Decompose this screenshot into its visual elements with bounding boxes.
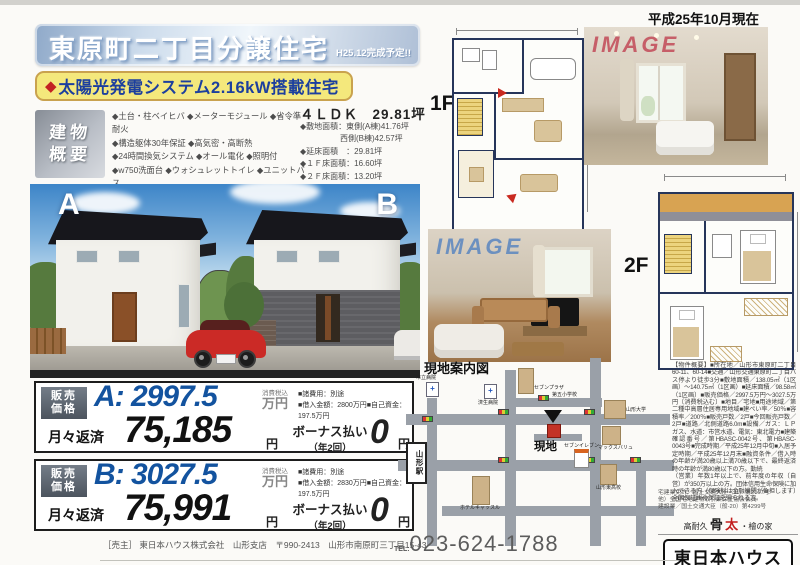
station-box: 山形駅 [406, 442, 427, 484]
license-line: 建設業／国土交通大臣（般-20）第4299号 [658, 504, 798, 511]
flyer-page: 東原町二丁目分譲住宅 H25.12完成予定!! ◆ 太陽光発電システム2.16k… [0, 0, 800, 565]
pillow [750, 234, 766, 244]
door-panel [325, 296, 331, 340]
spec-item: ◆敷地面積：東側(A棟)41.76坪 [300, 121, 409, 133]
bonus-label-a: ボーナス払い （年2回） [288, 421, 372, 454]
closet [744, 298, 788, 316]
overview-label-box: 建物 概要 [35, 110, 105, 178]
legal-text: 【物件概要】■所在地／山形市東原町二丁目60-11、60-14■交通／山形交通東… [672, 362, 796, 503]
tel-label: TEL: [394, 546, 410, 553]
map-label: 済生病院 [478, 399, 498, 406]
company-logo: 東日本ハウス [663, 539, 793, 565]
front-door-b [316, 294, 340, 342]
bathtub [530, 58, 576, 80]
stairs [457, 98, 483, 136]
interior-photo-1: IMAGE [584, 27, 768, 165]
floorplan-1f: 1F [430, 22, 590, 238]
phone-block: TEL:023-624-1788 [394, 531, 559, 557]
license-line: 宅建業免許／国土交通大臣（11）第2167号 [658, 490, 798, 497]
map-label: ホテルキャッスル [460, 504, 500, 511]
bonus-value-a: 0 [370, 413, 389, 452]
car-wheel [194, 350, 212, 368]
spec-item: ◆１Ｆ床面積：16.60坪 [300, 158, 409, 170]
site-marker-icon [547, 424, 561, 438]
kitchen-counter [502, 98, 544, 112]
bed [670, 306, 704, 360]
photo-bottom-strip [30, 370, 420, 378]
site-label: 現地 [534, 438, 557, 454]
red-car-illustration [186, 320, 266, 366]
license-line: 他）全国宅地建物取引業保証協会会員 [658, 497, 798, 504]
cloud [230, 184, 320, 204]
price-tag-a: 販売 価格 [41, 387, 87, 419]
wall [522, 40, 524, 94]
curtain [620, 59, 634, 121]
dimension-line [664, 176, 786, 177]
traffic-light-icon [630, 457, 641, 463]
house-b-illustration [246, 210, 408, 346]
brand-tagline: 高耐久 骨 太 ・檜の家 [658, 514, 798, 535]
window [118, 250, 140, 263]
hubcap [199, 355, 204, 360]
window [276, 250, 298, 263]
window [636, 63, 686, 123]
greenery [641, 96, 655, 116]
building-icon [472, 476, 490, 505]
wall [454, 92, 524, 94]
spec-list: ◆敷地面積：東側(A棟)41.76坪 西側(B棟)42.57坪 ◆延床面積 ：2… [300, 121, 409, 183]
living-sofa [520, 174, 558, 192]
solar-highlight-text: 太陽光発電システム2.16kW搭載住宅 [59, 74, 339, 98]
wall [660, 292, 792, 294]
tax-unit-a: 消費税込 万円 [258, 387, 292, 410]
tagline-hinoki: ・檜の家 [740, 522, 772, 531]
cost-note: ■諸費用：別途 [298, 467, 410, 478]
bonus-term: （年2回） [288, 518, 372, 532]
floorplan-2f-body [658, 192, 794, 370]
building-icon [600, 464, 617, 485]
walls-a [56, 240, 200, 346]
tax-unit-b: 消費税込 万円 [258, 465, 292, 488]
license-lines: 宅建業免許／国土交通大臣（11）第2167号 他）全国宅地建物取引業保証協会会員… [658, 490, 798, 511]
house-b-letter: B [376, 188, 398, 222]
toilet [482, 50, 497, 70]
chair [548, 306, 560, 328]
image-watermark: IMAGE [436, 234, 523, 260]
tagline-futo: 太 [725, 517, 738, 532]
yen-unit: 円 [266, 513, 278, 530]
blanket [743, 251, 771, 281]
house-a-illustration [48, 210, 208, 346]
spec-item: ◆２Ｆ床面積：13.20坪 [300, 171, 409, 183]
feature-item: ◆構造躯体30年保証 ◆高気密・高断熱 [112, 137, 308, 150]
bonus-title: ボーナス払い [288, 499, 372, 518]
house-a-letter: A [58, 188, 80, 222]
spec-item: 西側(B棟)42.57坪 [300, 133, 409, 145]
feature-item: ◆24時間換気システム ◆オール電化 ◆照明付 [112, 150, 308, 163]
dimension-line [797, 212, 798, 352]
map-label: 山形東高校 [596, 484, 621, 491]
seller-info: ［売主］ 東日本ハウス株式会社 山形支店 〒990-2413 山形市南原町三丁目… [103, 539, 427, 551]
floorplan-2f: 2F [622, 168, 798, 368]
title-banner: 東原町二丁目分譲住宅 H25.12完成予定!! [35, 24, 420, 66]
interior-photo-2: IMAGE [428, 229, 611, 362]
wall [494, 94, 496, 160]
floorplan-1f-body [452, 38, 584, 236]
traffic-light-icon [498, 457, 509, 463]
convenience-store-icon [574, 449, 589, 468]
road [636, 460, 646, 546]
cost-note: ■諸費用：別途 [298, 389, 410, 400]
map-label: セブンイレブン [564, 442, 599, 449]
image-watermark: IMAGE [592, 32, 679, 58]
dining-table [534, 120, 562, 142]
feature-item: ◆土台・柱ベイヒバ ◆メーターモジュール ◆省令準耐火 [112, 110, 308, 137]
price-unit: 万円 [258, 397, 292, 410]
curtain [533, 245, 545, 297]
dining-table [480, 298, 548, 322]
pillow [679, 310, 695, 320]
monthly-label-a: 月々返済 [48, 427, 104, 447]
overview-label-line1: 建物 [48, 122, 92, 144]
diamond-icon: ◆ [45, 77, 57, 95]
window [318, 250, 340, 263]
front-door-a [112, 292, 137, 342]
site-map: 現地案内図 山形駅 現地 セブンプラザ 第五小学校 + 市立病院 + 済生病院 … [398, 354, 674, 546]
completion-badge: H25.12完成予定!! [336, 45, 411, 59]
monthly-value-a: 75,185 [124, 409, 231, 451]
traffic-light-icon [584, 409, 595, 415]
bonus-label-b: ボーナス払い （年2回） [288, 499, 372, 532]
traffic-light-icon [538, 395, 549, 401]
window [76, 250, 98, 263]
blanket [673, 327, 699, 357]
plan-type: ４ＬＤＫ 29.81坪 [300, 103, 426, 123]
map-label: 山形大学 [626, 406, 646, 413]
tagline-hone: 骨 [710, 517, 723, 532]
loan-notes-b: ■諸費用：別途 ■借入金額：2830万円■自己資金：197.5万円 [298, 467, 410, 500]
price-tag-line1: 販売 [51, 468, 77, 481]
entrance-arrow-icon [498, 88, 507, 98]
hubcap [243, 355, 248, 360]
building-icon [602, 426, 621, 445]
price-tag-line2: 価格 [51, 481, 77, 494]
building-icon [604, 400, 626, 419]
map-label: マックスバリュ [598, 444, 633, 451]
road [406, 414, 670, 425]
monthly-label-b: 月々返済 [48, 505, 104, 525]
washstand [462, 48, 480, 62]
legal-paragraph: 【物件概要】■所在地／山形市東原町二丁目60-11、60-14■交通／山形交通東… [672, 362, 796, 473]
page-title: 東原町二丁目分譲住宅 [49, 29, 329, 66]
wall [494, 158, 582, 160]
price-unit: 万円 [258, 475, 292, 488]
price-box-b: 販売 価格 B: 3027.5 消費税込 万円 ■諸費用：別途 ■借入金額：28… [34, 459, 414, 531]
white-sofa [434, 324, 504, 358]
monthly-value-b: 75,991 [124, 487, 231, 529]
balcony-band [660, 212, 792, 221]
stairs [664, 234, 692, 274]
wc [712, 234, 732, 258]
wall [704, 221, 706, 293]
price-box-a: 販売 価格 A: 2997.5 消費税込 万円 ■諸費用：別途 ■借入金額：28… [34, 381, 414, 453]
bonus-value-b: 0 [370, 491, 389, 530]
floorplan-1f-label: 1F [430, 92, 455, 116]
low-table [469, 167, 484, 182]
loan-note: ■借入金額：2830万円■自己資金：197.5万円 [298, 478, 410, 500]
bed [740, 230, 776, 284]
phone-number: 023-624-1788 [410, 531, 559, 556]
door [724, 53, 756, 141]
dimension-line [456, 30, 578, 31]
brand-block: 宅建業免許／国土交通大臣（11）第2167号 他）全国宅地建物取引業保証協会会員… [658, 490, 798, 565]
car-wheel [238, 350, 256, 368]
bonus-title: ボーナス払い [288, 421, 372, 440]
closet [710, 346, 742, 362]
yen-unit: 円 [266, 435, 278, 452]
roof-band [660, 194, 792, 213]
traffic-light-icon [498, 409, 509, 415]
spec-item: ◆延床面積 ：29.81坪 [300, 146, 409, 158]
tagline-durability: 高耐久 [684, 522, 708, 531]
license-plate [216, 354, 236, 364]
loan-note: ■借入金額：2800万円■自己資金：197.5万円 [298, 400, 410, 422]
price-tag-line2: 価格 [51, 403, 77, 416]
exterior-rendering: A B [30, 184, 420, 378]
tatami-room [458, 150, 494, 198]
map-label: 市立病院 [416, 374, 436, 381]
scan-edge [0, 0, 800, 5]
site-arrow-icon [544, 410, 562, 423]
solar-highlight-box: ◆ 太陽光発電システム2.16kW搭載住宅 [35, 71, 353, 101]
road [590, 358, 601, 546]
hospital-icon: + [484, 384, 497, 399]
bonus-term: （年2回） [288, 440, 372, 454]
window-mullion [658, 66, 660, 120]
building-icon [518, 368, 534, 394]
floorplan-2f-label: 2F [624, 254, 649, 278]
price-tag-b: 販売 価格 [41, 465, 87, 497]
map-label: 第五小学校 [552, 391, 577, 398]
map-label: セブンプラザ [534, 384, 564, 391]
loan-notes-a: ■諸費用：別途 ■借入金額：2800万円■自己資金：197.5万円 [298, 389, 410, 422]
price-tag-line1: 販売 [51, 390, 77, 403]
hospital-icon: + [426, 382, 439, 397]
wood-fence [30, 328, 66, 354]
footer-rule [100, 560, 678, 561]
as-of-date: 平成25年10月現在 [648, 8, 759, 28]
entrance-arrow-icon [505, 191, 517, 203]
traffic-light-icon [422, 416, 433, 422]
white-sofa [656, 121, 714, 155]
overview-label-line2: 概要 [48, 144, 92, 166]
